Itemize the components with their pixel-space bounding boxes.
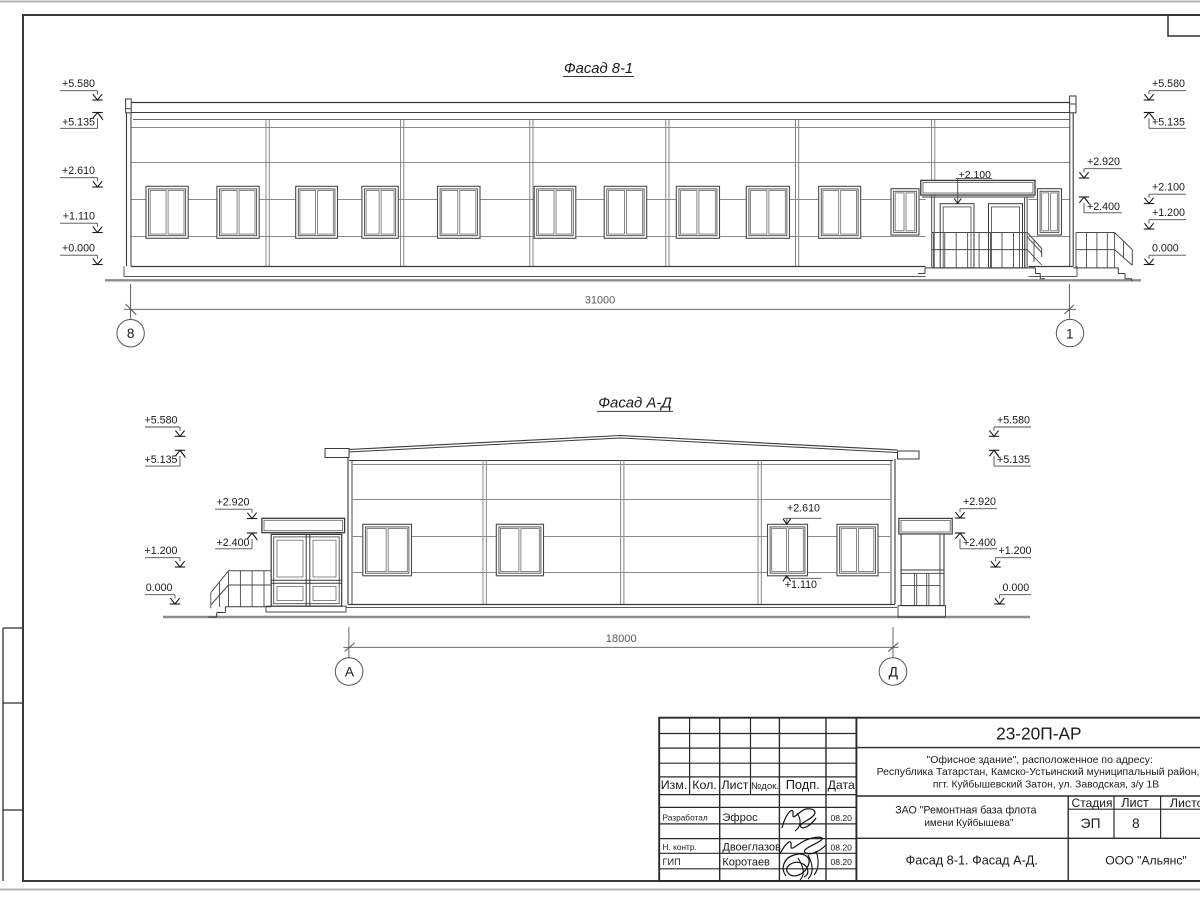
svg-text:Н. контр.: Н. контр. <box>663 842 697 852</box>
svg-text:8: 8 <box>1132 816 1140 831</box>
svg-text:+5.580: +5.580 <box>997 415 1030 427</box>
svg-text:0.000: 0.000 <box>146 582 173 594</box>
svg-text:+1.200: +1.200 <box>999 545 1032 557</box>
svg-text:"Офисное здание", расположенно: "Офисное здание", расположенное по адрес… <box>926 754 1152 766</box>
svg-text:31000: 31000 <box>585 295 615 307</box>
svg-text:ГИП: ГИП <box>663 857 681 867</box>
svg-text:Разработал: Разработал <box>663 812 708 822</box>
svg-text:+2.920: +2.920 <box>963 496 996 508</box>
svg-text:Фасад 8-1. Фасад А-Д.: Фасад 8-1. Фасад А-Д. <box>906 854 1038 868</box>
svg-text:ЭП: ЭП <box>1081 816 1101 831</box>
svg-text:+5.135: +5.135 <box>997 454 1030 466</box>
svg-text:Фасад А-Д: Фасад А-Д <box>598 396 672 412</box>
svg-text:ЗАО "Ремонтная база флота: ЗАО "Ремонтная база флота <box>895 805 1036 817</box>
svg-text:А: А <box>345 665 355 680</box>
svg-text:Эфрос: Эфрос <box>722 812 758 824</box>
svg-text:+2.100: +2.100 <box>1152 182 1185 194</box>
svg-text:Республика Татарстан, Камско-У: Республика Татарстан, Камско-Устьинский … <box>877 766 1200 778</box>
svg-text:08.20: 08.20 <box>830 857 852 867</box>
svg-text:+1.110: +1.110 <box>785 579 817 591</box>
svg-text:Лист: Лист <box>722 778 749 792</box>
svg-text:+1.110: +1.110 <box>63 211 95 223</box>
svg-text:+2.610: +2.610 <box>62 165 95 177</box>
svg-text:имени Куйбышева": имени Куйбышева" <box>924 817 1014 829</box>
svg-text:08.20: 08.20 <box>830 813 852 823</box>
svg-text:+5.135: +5.135 <box>62 116 95 128</box>
svg-text:+2.400: +2.400 <box>963 537 996 549</box>
svg-text:пгт. Куйбышевский Затон, ул. З: пгт. Куйбышевский Затон, ул. Заводская, … <box>933 779 1159 791</box>
svg-text:+5.135: +5.135 <box>145 454 178 466</box>
svg-text:+2.400: +2.400 <box>217 537 250 549</box>
svg-text:+2.920: +2.920 <box>1087 156 1120 168</box>
svg-text:+1.200: +1.200 <box>145 545 178 557</box>
svg-text:0.000: 0.000 <box>1003 582 1030 594</box>
svg-text:№док.: №док. <box>751 781 779 792</box>
svg-text:Д: Д <box>889 665 899 680</box>
svg-text:+2.400: +2.400 <box>1087 201 1120 213</box>
svg-text:ООО "Альянс": ООО "Альянс" <box>1105 854 1187 868</box>
svg-text:+2.100: +2.100 <box>959 169 992 181</box>
svg-text:Дата: Дата <box>828 778 855 792</box>
svg-text:+2.920: +2.920 <box>217 497 250 509</box>
svg-text:8: 8 <box>127 326 135 341</box>
svg-text:+0.000: +0.000 <box>62 243 95 255</box>
svg-text:23-20П-АР: 23-20П-АР <box>996 724 1081 744</box>
svg-text:Изм.: Изм. <box>661 778 688 792</box>
svg-text:+1.200: +1.200 <box>1152 207 1185 219</box>
svg-text:1: 1 <box>1066 326 1074 341</box>
svg-text:+5.580: +5.580 <box>1152 78 1185 90</box>
svg-text:Двоеглазов: Двоеглазов <box>722 842 781 854</box>
svg-text:0.000: 0.000 <box>1152 243 1179 255</box>
svg-text:Листов: Листов <box>1170 796 1200 810</box>
svg-text:+5.580: +5.580 <box>145 415 178 427</box>
svg-text:18000: 18000 <box>606 633 637 645</box>
svg-text:Лист: Лист <box>1121 796 1149 810</box>
svg-text:Кол.: Кол. <box>692 778 717 792</box>
svg-text:+5.135: +5.135 <box>1152 116 1185 128</box>
svg-text:+2.610: +2.610 <box>787 502 820 514</box>
svg-text:Коротаев: Коротаев <box>722 856 770 868</box>
svg-text:08.20: 08.20 <box>830 842 852 852</box>
svg-text:Фасад 8-1: Фасад 8-1 <box>564 61 633 77</box>
svg-text:Стадия: Стадия <box>1072 796 1113 810</box>
svg-text:Подп.: Подп. <box>786 777 820 792</box>
svg-text:+5.580: +5.580 <box>62 78 95 90</box>
